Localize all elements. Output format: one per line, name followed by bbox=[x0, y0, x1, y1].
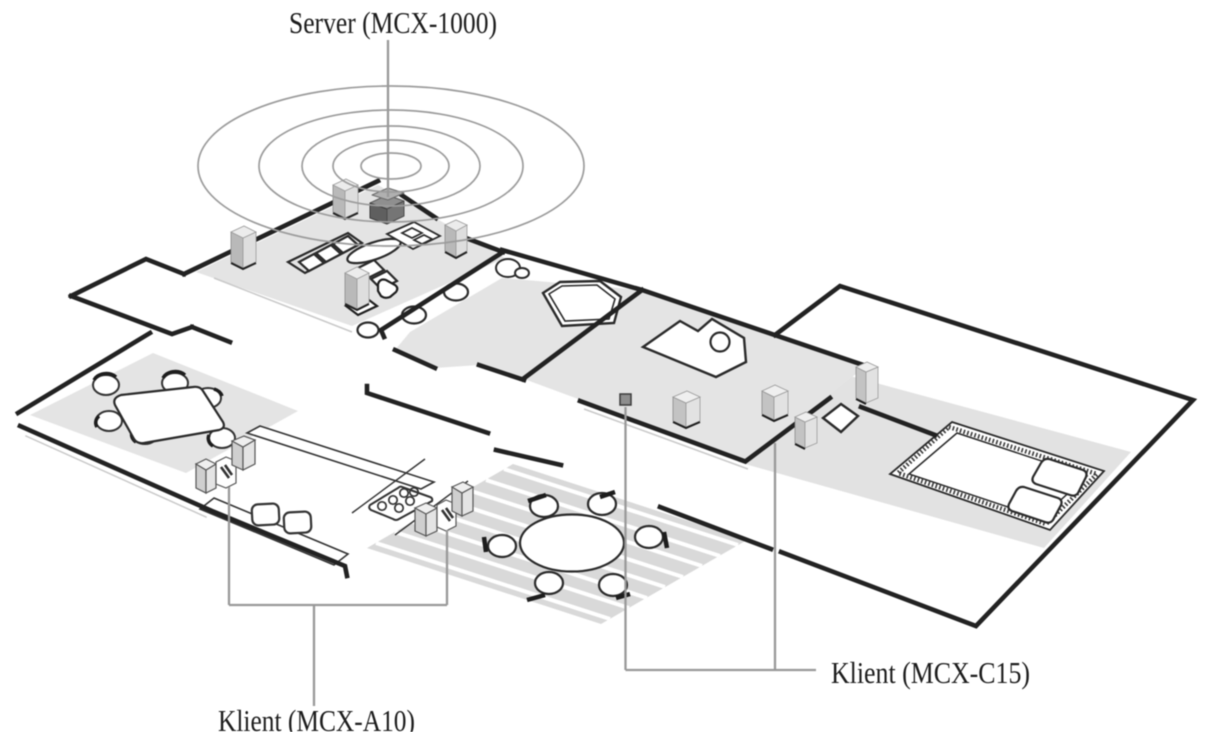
svg-text:Klient (MCX-C15): Klient (MCX-C15) bbox=[831, 655, 1030, 690]
svg-text:Klient (MCX-A10): Klient (MCX-A10) bbox=[218, 703, 415, 732]
svg-text:Server (MCX-1000): Server (MCX-1000) bbox=[289, 5, 497, 40]
